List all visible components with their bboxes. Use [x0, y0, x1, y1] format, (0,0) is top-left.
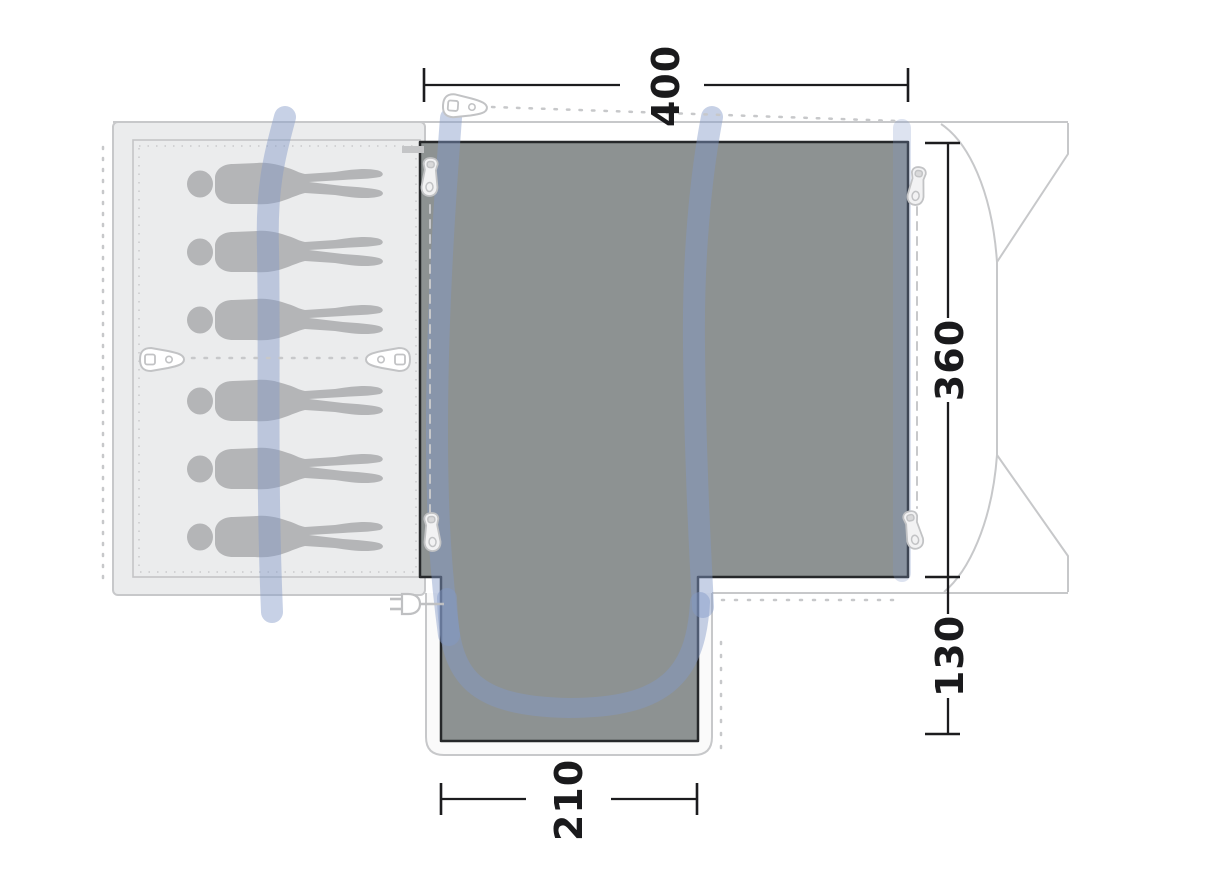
dimension-label-porch-width: 210	[550, 759, 588, 841]
zipper-pull-icon	[423, 513, 441, 552]
floorplan-canvas	[0, 0, 1230, 887]
dimension-label-top-width: 400	[647, 45, 685, 127]
strap-attachment	[402, 146, 424, 153]
groundsheet-area	[420, 142, 908, 741]
dimension-label-porch-depth: 130	[931, 615, 969, 697]
tent-floorplan-diagram: 400 360 130 210	[0, 0, 1230, 887]
tent-peg-icon	[442, 94, 487, 120]
guyline-top	[492, 107, 898, 121]
canopy-top-diagonal	[997, 123, 1068, 262]
zipper-pull-icon	[421, 158, 439, 197]
dimension-label-side-depth: 360	[931, 319, 969, 401]
canopy-bottom-diagonal	[997, 455, 1068, 592]
